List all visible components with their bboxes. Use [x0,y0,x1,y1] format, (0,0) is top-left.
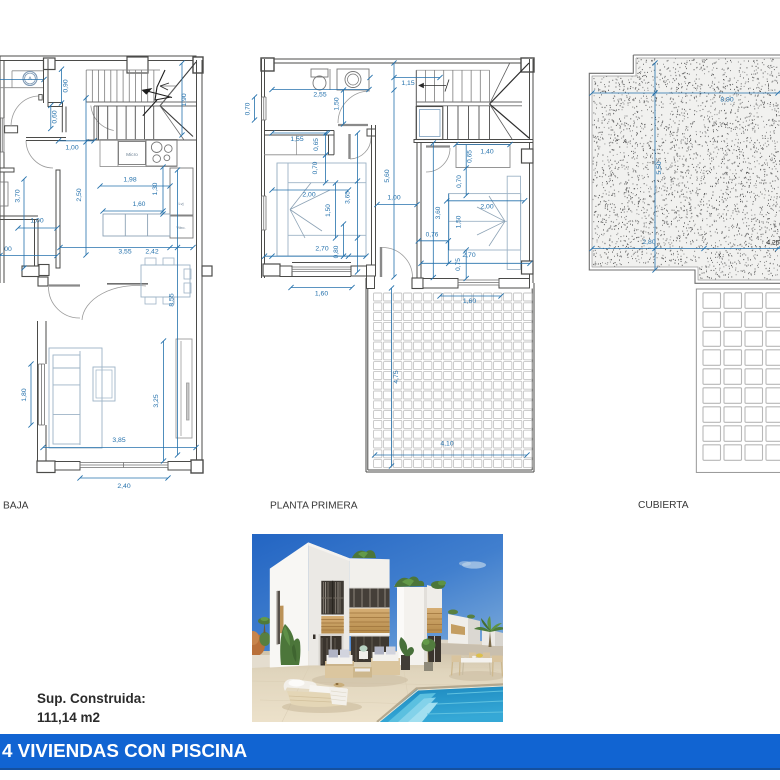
svg-text:3,55: 3,55 [118,249,131,256]
svg-text:1,00: 1,00 [387,195,400,202]
svg-text:Lvj: Lvj [178,201,183,206]
svg-text:8,55: 8,55 [169,293,176,306]
svg-text:1,40: 1,40 [480,149,493,156]
svg-text:BAJA: BAJA [3,501,29,512]
svg-text:4,75: 4,75 [393,370,400,383]
svg-text:1,60: 1,60 [315,291,328,298]
svg-text:3,85: 3,85 [112,437,125,444]
svg-text:2,42: 2,42 [145,249,158,256]
svg-text:1,60: 1,60 [463,298,476,305]
svg-text:2,40: 2,40 [117,483,130,490]
svg-text:8,90: 8,90 [720,97,733,104]
svg-text:1,00: 1,00 [30,218,43,225]
svg-text:00: 00 [4,246,12,253]
svg-text:1,00: 1,00 [65,145,78,152]
svg-text:1,50: 1,50 [456,215,463,228]
svg-text:PLANTA PRIMERA: PLANTA PRIMERA [270,501,358,512]
svg-text:2,80: 2,80 [642,239,655,246]
svg-text:3,25: 3,25 [153,394,160,407]
svg-text:1,30: 1,30 [152,182,159,195]
svg-text:0,76: 0,76 [426,232,439,239]
svg-text:1,55: 1,55 [290,136,303,143]
svg-text:Micro: Micro [126,152,138,158]
svg-text:0,90: 0,90 [63,79,70,92]
svg-text:2,55: 2,55 [313,92,326,99]
svg-text:1,90: 1,90 [181,93,188,106]
svg-text:2,00: 2,00 [302,192,315,199]
svg-text:1,50: 1,50 [325,204,332,217]
svg-text:0,75: 0,75 [455,258,462,271]
svg-text:1,80: 1,80 [21,388,28,401]
svg-text:3,70: 3,70 [15,189,22,202]
svg-text:2,70: 2,70 [315,246,328,253]
svg-text:0,60: 0,60 [52,110,59,123]
svg-text:3,65: 3,65 [345,191,352,204]
svg-text:5,60: 5,60 [384,169,391,182]
svg-text:1,98: 1,98 [123,177,136,184]
svg-text:0,70: 0,70 [312,161,319,174]
svg-text:2,00: 2,00 [480,204,493,211]
svg-text:1,15: 1,15 [401,80,414,87]
svg-text:2,50: 2,50 [76,188,83,201]
svg-text:3,60: 3,60 [435,206,442,219]
svg-text:4,10: 4,10 [440,441,453,448]
svg-text:1,50: 1,50 [334,97,341,110]
svg-text:5,50: 5,50 [656,161,663,174]
svg-text:1,60: 1,60 [133,201,146,208]
svg-text:0,65: 0,65 [313,138,320,151]
svg-text:0,70: 0,70 [245,102,252,115]
svg-text:0,80: 0,80 [333,245,340,258]
svg-text:4,25: 4,25 [766,240,779,247]
svg-text:0,65: 0,65 [467,150,474,163]
svg-text:0,70: 0,70 [456,175,463,188]
svg-text:2,70: 2,70 [462,252,475,259]
svg-text:CUBIERTA: CUBIERTA [638,500,689,511]
